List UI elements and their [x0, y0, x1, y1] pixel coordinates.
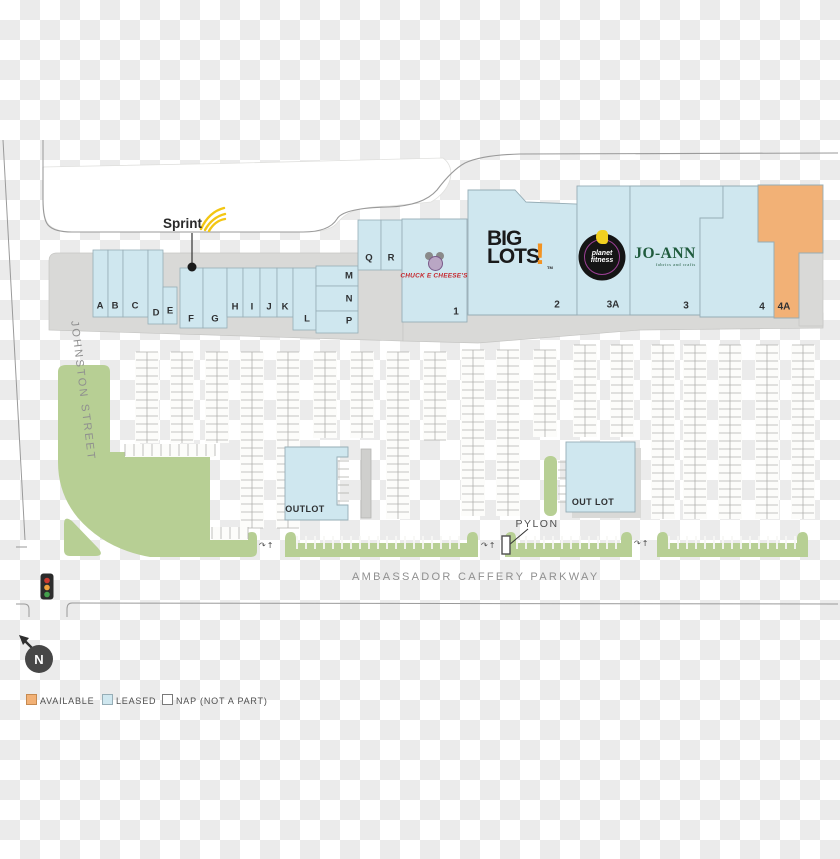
joann-wordmark: JO-ANN — [634, 245, 696, 263]
big-lots-tm: TM — [547, 266, 553, 270]
outlot-east-label: OUT LOT — [572, 497, 614, 507]
building-pad-corner — [799, 253, 823, 326]
unit-label-B: B — [112, 301, 119, 312]
entrance-arrows-icon: ↷↑ — [481, 541, 496, 550]
unit-label-3A: 3A — [607, 300, 620, 311]
unit-label-G: G — [211, 314, 218, 325]
unit-label-4: 4 — [759, 302, 765, 313]
site-plan-map — [0, 0, 840, 859]
unit-label-I: I — [251, 302, 254, 313]
chuck-e-cheeses-logo: CHUCK E CHEESE'S — [400, 273, 467, 280]
joann-logo: JO-ANN fabrics and crafts — [634, 245, 696, 267]
unit-label-H: H — [232, 302, 239, 313]
outlot-west-canopy — [361, 449, 371, 518]
curb-strip-2 — [505, 532, 632, 557]
unit-label-D: D — [153, 308, 160, 319]
curb-strip-1 — [285, 532, 478, 557]
street-label-ambassador: AMBASSADOR CAFFERY PARKWAY — [352, 571, 599, 583]
unit-label-P: P — [346, 316, 352, 327]
planet-fitness-thumb-icon — [596, 230, 608, 244]
sprint-label: Sprint — [163, 216, 202, 231]
entrance-arrows-icon: ↷↑ — [259, 541, 274, 550]
unit-label-F: F — [188, 314, 194, 325]
unit-label-C: C — [132, 301, 139, 312]
entrance-arrows-icon: ↷↑ — [634, 539, 649, 548]
legend-swatch-nap — [162, 694, 173, 705]
planet-fitness-word-2: fitness — [591, 257, 614, 264]
legend-swatch-available — [26, 694, 37, 705]
unit-label-R: R — [388, 253, 395, 264]
legend-label-available: AVAILABLE — [40, 696, 94, 706]
unit-label-2: 2 — [554, 300, 560, 311]
chuck-mouse-head-icon — [428, 256, 443, 271]
legend-label-nap: NAP (NOT A PART) — [176, 696, 268, 706]
landscape-green-bracket — [544, 456, 557, 516]
unit-label-Q: Q — [365, 253, 372, 264]
unit-label-M: M — [345, 271, 353, 282]
johnston-street-curb-west — [3, 140, 27, 547]
unit-label-A: A — [97, 301, 104, 312]
big-lots-exclamation: ! — [535, 242, 544, 268]
unit-label-3: 3 — [683, 301, 689, 312]
intersection-corner-west — [16, 604, 29, 617]
outlot-west-label: OUTLOT — [285, 504, 324, 514]
unit-label-4A: 4A — [778, 302, 791, 313]
strip-units — [93, 220, 403, 333]
big-lots-logo: BIG LOTS ! TM — [487, 230, 553, 267]
planet-fitness-word-1: planet — [592, 250, 613, 257]
unit-label-E: E — [167, 306, 173, 317]
sprint-location-dot — [188, 263, 197, 272]
legend-swatch-leased — [102, 694, 113, 705]
unit-label-L: L — [304, 314, 310, 325]
pylon-label: PYLON — [515, 518, 558, 530]
site-plan-canvas: JOHNSTON STREET AMBASSADOR CAFFERY PARKW… — [0, 0, 840, 859]
unit-label-N: N — [346, 294, 353, 305]
parking-lot — [125, 345, 815, 549]
traffic-light-icon — [41, 574, 54, 600]
unit-label-1: 1 — [453, 307, 459, 318]
parkway-curb-line — [67, 603, 838, 617]
unit-label-K: K — [282, 302, 289, 313]
north-compass-badge: N — [25, 645, 53, 673]
pylon-sign — [502, 536, 510, 554]
unit-label-J: J — [266, 302, 271, 313]
legend-label-leased: LEASED — [116, 696, 156, 706]
